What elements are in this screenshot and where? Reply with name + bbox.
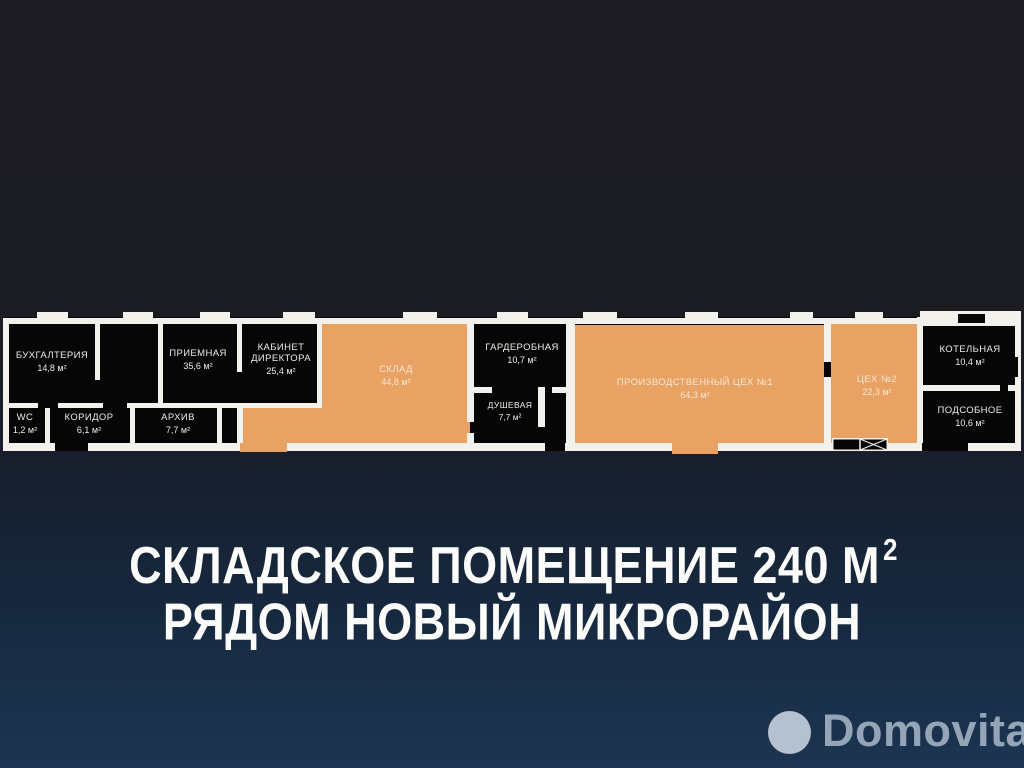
wall-right — [1015, 326, 1021, 451]
wall-segment — [474, 387, 492, 393]
listing-title: СКЛАДСКОЕ ПОМЕЩЕНИЕ 240 М2 РЯДОМ НОВЫЙ М… — [0, 527, 1024, 650]
window-marker — [283, 312, 315, 318]
listing-image: БУХГАЛТЕРИЯ14,8 м² ПРИЕМНАЯ35,6 м² КАБИН… — [0, 0, 1024, 768]
superscript-2: 2 — [883, 532, 898, 567]
wall-segment — [824, 377, 831, 443]
room-label-podsobnoe: ПОДСОБНОЕ10,6 м² — [928, 405, 1012, 429]
domovita-logo-text: Domovita — [822, 705, 1024, 757]
wall-bottom-segment — [888, 443, 922, 451]
title-line-1: СКЛАДСКОЕ ПОМЕЩЕНИЕ 240 М2 — [0, 522, 1024, 599]
wall-segment — [552, 387, 570, 393]
wall-bottom-segment — [88, 443, 240, 451]
title-line-2: РЯДОМ НОВЫЙ МИКРОРАЙОН — [0, 588, 1024, 654]
room-label-dushevaya: ДУШЕВАЯ7,7 м² — [478, 400, 542, 422]
wall-segment — [237, 408, 243, 443]
wall-segment — [566, 323, 575, 443]
wall-segment — [917, 317, 923, 443]
wall-bottom-segment — [3, 443, 55, 451]
window-marker — [403, 312, 437, 318]
domovita-circle-icon — [768, 711, 811, 754]
wall-segment — [824, 323, 831, 362]
room-label-kabinet-direktora: КАБИНЕТ ДИРЕКТОРА25,4 м² — [245, 342, 317, 377]
wall-segment — [923, 385, 1000, 391]
wall-bottom-segment — [287, 443, 545, 451]
room-tseh1-door-notch — [672, 438, 718, 454]
stairs-hatch-icon — [832, 438, 888, 451]
wall-segment — [317, 323, 322, 403]
wall-segment — [467, 323, 474, 422]
room-label-garderobnaya: ГАРДЕРОБНАЯ10,7 м² — [476, 342, 568, 366]
window-marker — [37, 312, 68, 318]
window-marker — [685, 312, 718, 318]
room-label-koridor: КОРИДОР6,1 м² — [53, 412, 125, 436]
wall-bottom-segment — [718, 443, 832, 451]
room-sklad-door-notch — [240, 438, 287, 452]
window-marker — [497, 312, 528, 318]
wall-segment — [1008, 385, 1015, 391]
room-label-buhgalteriya: БУХГАЛТЕРИЯ14,8 м² — [8, 350, 96, 374]
wall-segment — [467, 433, 474, 443]
window-marker — [123, 312, 153, 318]
window-slot-right — [1015, 357, 1018, 377]
wall-segment — [130, 408, 135, 443]
wall-segment — [3, 403, 38, 408]
room-label-sklad: СКЛАД44,8 м² — [352, 364, 440, 388]
wall-bottom-segment — [565, 443, 672, 451]
room-label-priemnaya: ПРИЕМНАЯ35,6 м² — [160, 348, 236, 372]
room-label-proizvodstvennyj-tseh-1: ПРОИЗВОДСТВЕННЫЙ ЦЕХ №164,3 м² — [585, 377, 805, 401]
room-label-wc: WC1,2 м² — [6, 412, 44, 436]
wall-segment — [45, 408, 50, 443]
window-slot-kotelnaya — [958, 314, 985, 323]
wall-segment — [127, 403, 322, 408]
room-label-kotelnaya: КОТЕЛЬНАЯ10,4 м² — [928, 344, 1012, 368]
window-marker — [200, 312, 230, 318]
wall-bottom-segment — [968, 443, 1021, 451]
wall-segment — [237, 323, 242, 372]
wall-segment — [58, 403, 103, 408]
room-label-tseh-2: ЦЕХ №222,3 м² — [838, 374, 916, 398]
wall-top — [3, 318, 920, 324]
window-marker — [855, 312, 883, 318]
wall-segment — [217, 408, 222, 443]
room-label-arhiv: АРХИВ7,7 м² — [142, 412, 214, 436]
window-marker — [583, 312, 617, 318]
window-marker — [790, 312, 813, 318]
